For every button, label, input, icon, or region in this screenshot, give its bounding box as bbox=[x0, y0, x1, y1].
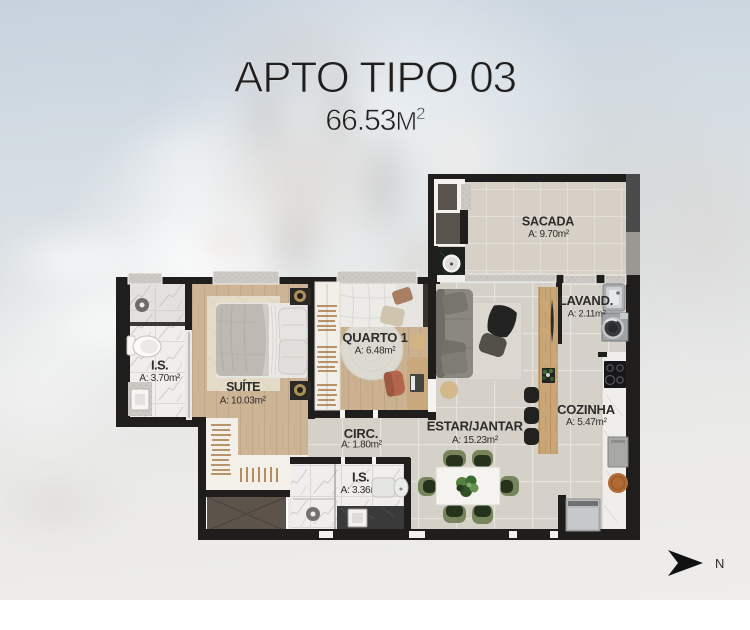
svg-text:SUÍTE: SUÍTE bbox=[226, 379, 260, 394]
svg-text:I.S.: I.S. bbox=[151, 358, 168, 373]
svg-text:QUARTO 1: QUARTO 1 bbox=[342, 330, 407, 345]
svg-text:A: 10.03m²: A: 10.03m² bbox=[220, 396, 267, 407]
svg-text:N: N bbox=[715, 556, 724, 571]
svg-text:A: 3.70m²: A: 3.70m² bbox=[139, 373, 181, 384]
svg-text:ESTAR/JANTAR: ESTAR/JANTAR bbox=[427, 419, 524, 434]
svg-text:I.S.: I.S. bbox=[352, 469, 369, 484]
svg-text:COZINHA: COZINHA bbox=[557, 402, 616, 417]
svg-text:A: 9.70m²: A: 9.70m² bbox=[528, 229, 570, 240]
svg-text:A: 2.11m²: A: 2.11m² bbox=[568, 309, 606, 320]
svg-text:A: 1.80m²: A: 1.80m² bbox=[341, 440, 383, 451]
svg-text:A: 15.23m²: A: 15.23m² bbox=[452, 435, 499, 446]
svg-text:A: 5.47m²: A: 5.47m² bbox=[566, 417, 608, 428]
svg-text:LAVAND.: LAVAND. bbox=[559, 293, 613, 308]
svg-text:A: 6.48m²: A: 6.48m² bbox=[355, 346, 397, 357]
svg-text:SACADA: SACADA bbox=[522, 215, 574, 229]
